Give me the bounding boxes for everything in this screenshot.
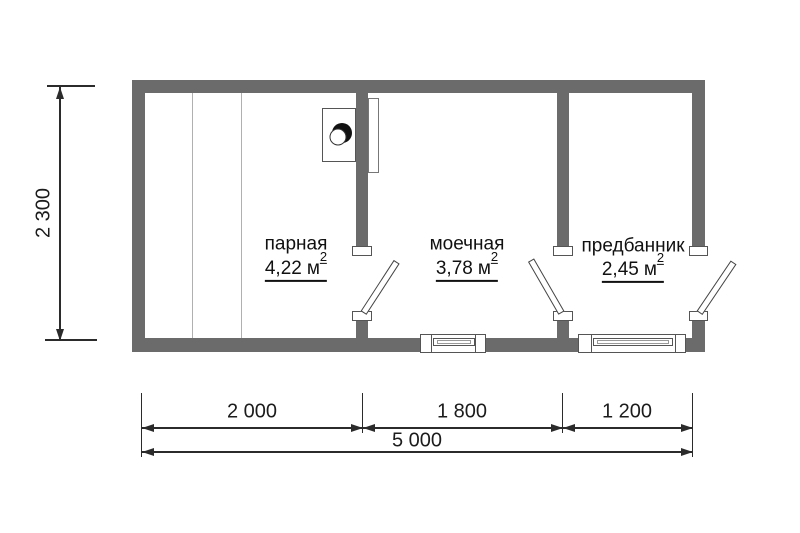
arrowhead-right-icon: [551, 424, 563, 432]
door-jamb-2-bottom: [553, 311, 573, 321]
exterior-wall-top: [132, 80, 705, 93]
extension-tick-bottom: [45, 339, 97, 341]
interior-wall-2-lower: [557, 318, 569, 339]
dimension-line-segments: [142, 427, 693, 429]
room-area-steam: 4,22м2: [265, 256, 327, 280]
window-frame-line: [475, 335, 476, 352]
window-frame-line: [431, 335, 432, 352]
dimension-label-height: 2 300: [33, 188, 56, 238]
arrowhead-left-icon: [142, 448, 154, 456]
dimension-label-washing-width: 1 800: [437, 401, 487, 424]
arrowhead-down-icon: [56, 329, 64, 341]
arrowhead-up-icon: [56, 87, 64, 99]
interior-wall-1-lower: [356, 318, 368, 339]
window-frame-line: [591, 335, 592, 352]
arrowhead-left-icon: [563, 424, 575, 432]
room-label-dressing: предбанник: [581, 237, 684, 258]
exterior-wall-right-upper: [692, 80, 705, 247]
floor-plan-canvas: парная 4,22м2 моечная 3,78м2 предбанник …: [0, 0, 800, 533]
door-jamb-2-top: [553, 246, 573, 256]
arrowhead-right-icon: [681, 448, 693, 456]
dimension-label-total-width: 5 000: [392, 430, 442, 453]
arrowhead-right-icon: [681, 424, 693, 432]
window-frame-line: [675, 335, 676, 352]
stove-icon: [323, 109, 354, 160]
dimension-label-steam-width: 2 000: [227, 401, 277, 424]
room-area-dressing: 2,45м2: [602, 257, 664, 281]
door-leaf-entrance: [697, 260, 737, 314]
bench-line-1: [192, 93, 193, 339]
room-area-washing: 3,78м2: [436, 256, 498, 280]
arrowhead-right-icon: [351, 424, 363, 432]
door-jamb-entrance-top: [689, 246, 708, 256]
dimension-label-dressing-width: 1 200: [602, 401, 652, 424]
stove: [322, 108, 356, 162]
dimension-line-height: [59, 87, 61, 341]
exterior-wall-left: [132, 80, 145, 352]
window-washing-room: [420, 334, 486, 353]
water-tank: [368, 98, 379, 173]
door-jamb-1-top: [352, 246, 372, 256]
arrowhead-left-icon: [363, 424, 375, 432]
window-glass-line: [597, 340, 669, 344]
window-glass-line: [437, 340, 471, 344]
window-dressing-room: [578, 334, 686, 353]
arrowhead-left-icon: [142, 424, 154, 432]
interior-wall-2-upper: [557, 92, 569, 248]
interior-wall-1-upper: [356, 92, 368, 248]
room-label-steam: парная: [265, 235, 328, 256]
bench-line-2: [241, 93, 242, 339]
door-leaf-steam-room: [361, 260, 400, 315]
door-leaf-washing-room: [528, 258, 565, 314]
extension-tick-top: [47, 85, 95, 87]
